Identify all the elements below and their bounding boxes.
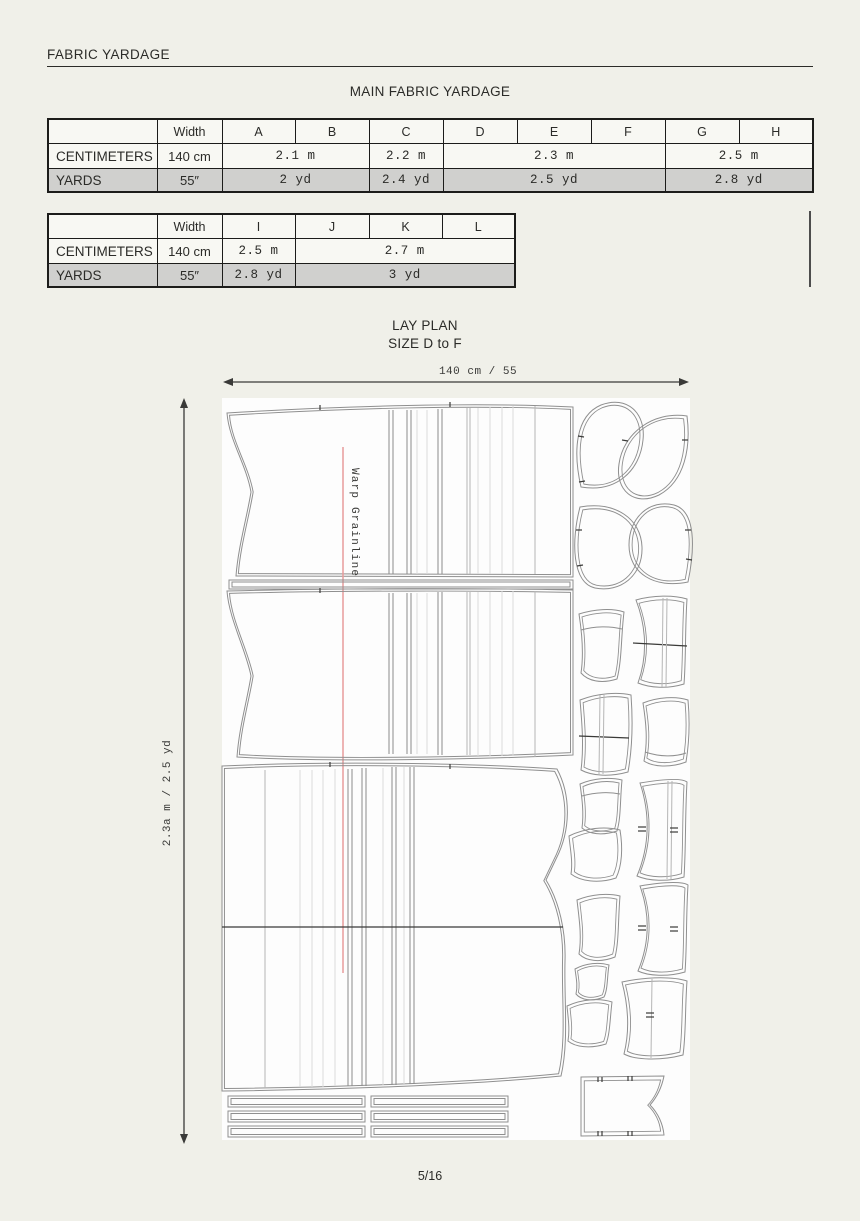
pattern-document-page: FABRIC YARDAGE MAIN FABRIC YARDAGE Width… [0, 0, 860, 1221]
lay-plan-diagram: 140 cm / 55 2.3a m / 2.5 yd [140, 356, 710, 1156]
row-label-centimeters: CENTIMETERS [48, 144, 157, 169]
title-divider [47, 66, 813, 67]
fabric-width-inch: 55″ [157, 264, 222, 288]
fabric-length-label: 2.3a m / 2.5 yd [162, 740, 174, 847]
size-header-k: K [369, 214, 442, 239]
size-header-i: I [222, 214, 295, 239]
yardage-yd-ab: 2 yd [222, 169, 369, 193]
lay-plan-title: LAY PLAN [305, 317, 545, 335]
yardage-cm-gh: 2.5 m [665, 144, 813, 169]
row-label-yards: YARDS [48, 264, 157, 288]
yardage-cm-c: 2.2 m [369, 144, 443, 169]
size-header-j: J [295, 214, 369, 239]
scrollbar-thumb[interactable] [809, 211, 811, 287]
lay-plan-title-block: LAY PLAN SIZE D to F [305, 317, 545, 353]
fabric-width-label: 140 cm / 55 [439, 366, 517, 378]
yardage-yd-def: 2.5 yd [443, 169, 665, 193]
size-header-d: D [443, 119, 517, 144]
yardage-yd-i: 2.8 yd [222, 264, 295, 288]
size-header-f: F [591, 119, 665, 144]
corner-cell [48, 214, 157, 239]
main-fabric-yardage-table: Width A B C D E F G H CENTIMETERS 140 cm… [47, 118, 814, 193]
size-header-h: H [739, 119, 813, 144]
size-header-a: A [222, 119, 295, 144]
fabric-area [222, 398, 690, 1140]
size-header-c: C [369, 119, 443, 144]
yardage-yd-gh: 2.8 yd [665, 169, 813, 193]
width-header-cell: Width [157, 214, 222, 239]
size-header-g: G [665, 119, 739, 144]
page-title: FABRIC YARDAGE [47, 47, 170, 62]
yardage-yd-c: 2.4 yd [369, 169, 443, 193]
fabric-width-arrow: 140 cm / 55 [223, 366, 689, 386]
size-header-l: L [442, 214, 515, 239]
row-label-centimeters: CENTIMETERS [48, 239, 157, 264]
lay-plan-subtitle: SIZE D to F [305, 335, 545, 353]
yardage-cm-ab: 2.1 m [222, 144, 369, 169]
fabric-length-arrow: 2.3a m / 2.5 yd [162, 398, 188, 1144]
yardage-cm-def: 2.3 m [443, 144, 665, 169]
second-fabric-yardage-table: Width I J K L CENTIMETERS 140 cm 2.5 m 2… [47, 213, 516, 288]
grainline-label: Warp Grainline [348, 468, 360, 577]
fabric-width-inch: 55″ [157, 169, 222, 193]
yardage-cm-jkl: 2.7 m [295, 239, 515, 264]
row-label-yards: YARDS [48, 169, 157, 193]
main-table-title: MAIN FABRIC YARDAGE [47, 84, 813, 99]
yardage-yd-jkl: 3 yd [295, 264, 515, 288]
corner-cell [48, 119, 157, 144]
yardage-cm-i: 2.5 m [222, 239, 295, 264]
fabric-width-cm: 140 cm [157, 239, 222, 264]
page-number: 5/16 [380, 1169, 480, 1183]
size-header-e: E [517, 119, 591, 144]
fabric-width-cm: 140 cm [157, 144, 222, 169]
size-header-b: B [295, 119, 369, 144]
width-header-cell: Width [157, 119, 222, 144]
